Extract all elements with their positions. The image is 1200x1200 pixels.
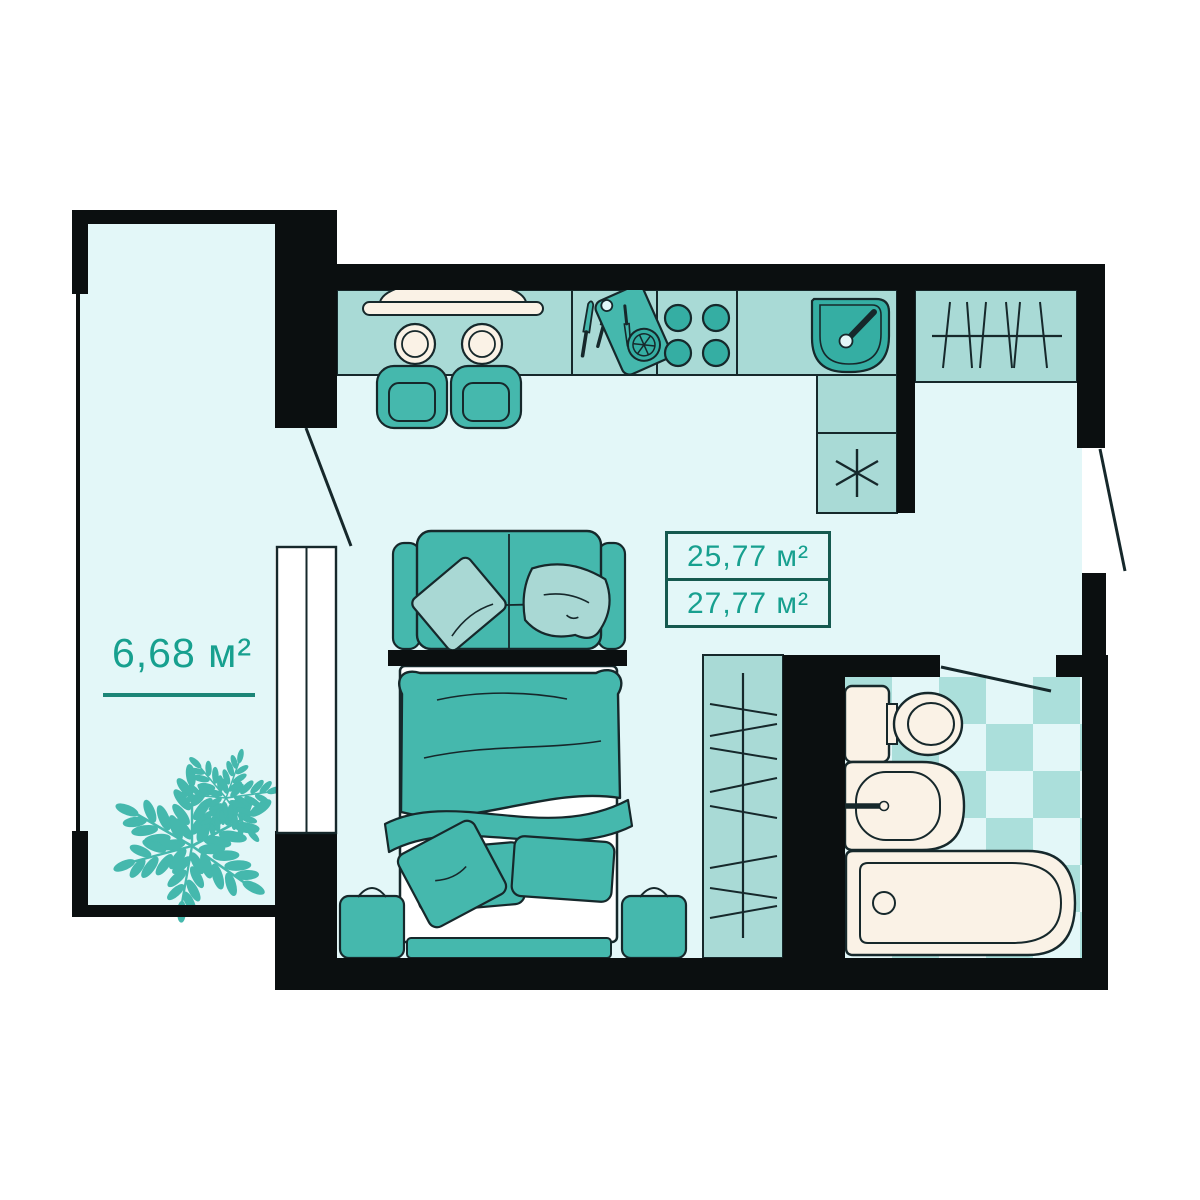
entrance-door-leaf xyxy=(1100,449,1125,571)
total-area-label: 27,77 м² xyxy=(668,578,828,625)
bathtub-icon xyxy=(846,851,1075,955)
balcony-area-underline xyxy=(103,693,255,697)
hall-wardrobe-icon xyxy=(915,290,1077,382)
drain-icon xyxy=(873,892,895,914)
sofa-icon xyxy=(393,531,625,653)
living-area-label: 25,77 м² xyxy=(668,534,828,578)
washbasin-icon xyxy=(843,762,964,850)
kitchen-sink-icon xyxy=(812,299,889,372)
floor-plan: 25,77 м² 27,77 м² 6,68 м² xyxy=(0,0,1200,1200)
bed-pillow-icon xyxy=(511,836,615,903)
bed-footboard xyxy=(407,938,611,958)
bed-icon xyxy=(385,666,632,958)
french-window xyxy=(277,547,336,833)
floor-plan-drawing xyxy=(0,0,1200,1200)
washing-machine-icon xyxy=(817,433,897,513)
nightstand-icon xyxy=(340,888,404,958)
balcony-area-label: 6,68 м² xyxy=(98,630,266,677)
plate-icon xyxy=(395,324,435,364)
bedroom-wardrobe-icon xyxy=(703,655,783,958)
chair-icon xyxy=(451,366,521,428)
nightstand-icon xyxy=(622,888,686,958)
plate-icon xyxy=(462,324,502,364)
chair-icon xyxy=(377,366,447,428)
sofa-bed-partition xyxy=(388,650,627,666)
area-summary-box: 25,77 м² 27,77 м² xyxy=(665,531,831,628)
